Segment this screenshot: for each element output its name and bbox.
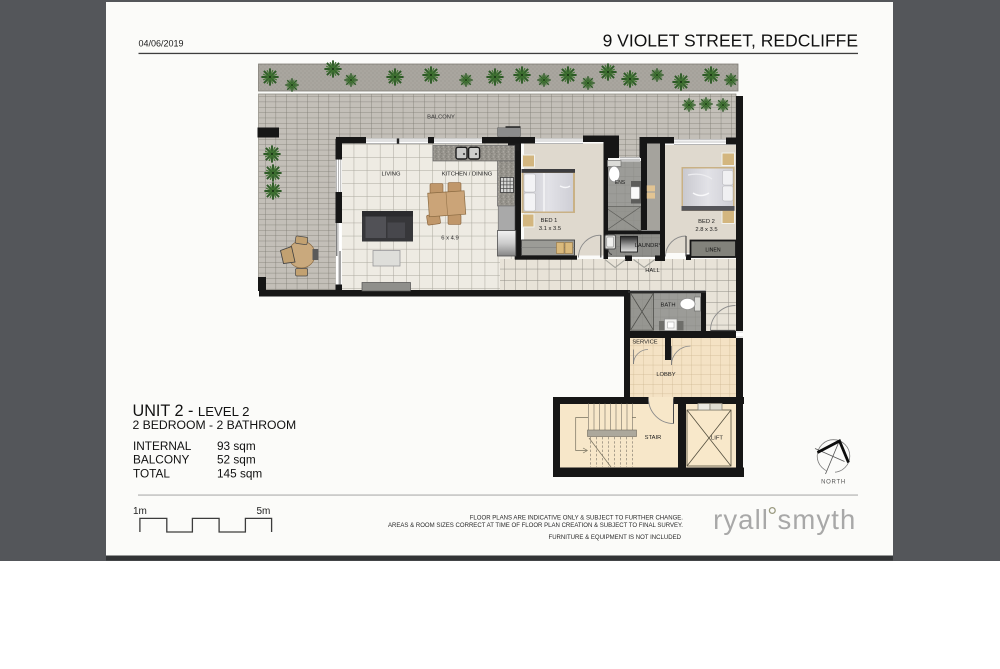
svg-text:STAIR: STAIR: [645, 435, 662, 441]
svg-text:KITCHEN / DINING: KITCHEN / DINING: [442, 172, 493, 178]
svg-text:5m: 5m: [257, 506, 271, 517]
svg-text:ryall: ryall: [713, 504, 769, 535]
svg-text:04/06/2019: 04/06/2019: [139, 39, 184, 49]
svg-text:1m: 1m: [133, 506, 147, 517]
svg-text:145 sqm: 145 sqm: [217, 466, 262, 480]
svg-text:LAUNDRY: LAUNDRY: [635, 243, 663, 249]
svg-text:AREAS & ROOM SIZES CORRECT AT: AREAS & ROOM SIZES CORRECT AT TIME OF FL…: [388, 523, 683, 529]
svg-text:TOTAL: TOTAL: [133, 466, 170, 480]
svg-text:BALCONY: BALCONY: [427, 115, 455, 121]
svg-text:6 x 4.9: 6 x 4.9: [441, 236, 458, 242]
svg-text:9 VIOLET STREET, REDCLIFFE: 9 VIOLET STREET, REDCLIFFE: [603, 31, 858, 51]
svg-text:HALL: HALL: [645, 268, 660, 274]
svg-text:INTERNAL: INTERNAL: [133, 439, 192, 453]
svg-text:LIVING: LIVING: [381, 172, 400, 178]
svg-text:3.1 x 3.5: 3.1 x 3.5: [539, 226, 561, 232]
svg-text:LINEN: LINEN: [705, 248, 721, 254]
svg-text:2 BEDROOM - 2 BATHROOM: 2 BEDROOM - 2 BATHROOM: [133, 418, 297, 432]
svg-text:BED 2: BED 2: [698, 219, 715, 225]
svg-text:52 sqm: 52 sqm: [217, 453, 256, 467]
svg-text:smyth: smyth: [778, 504, 857, 535]
svg-text:SERVICE: SERVICE: [632, 340, 657, 346]
svg-text:93 sqm: 93 sqm: [217, 439, 256, 453]
svg-text:NORTH: NORTH: [821, 480, 846, 486]
svg-text:LIFT: LIFT: [711, 436, 723, 442]
svg-text:BATH: BATH: [660, 303, 675, 309]
svg-text:ENS: ENS: [615, 180, 626, 186]
svg-text:2.8 x 3.5: 2.8 x 3.5: [695, 227, 717, 233]
svg-text:FURNITURE & EQUIPMENT IS NOT I: FURNITURE & EQUIPMENT IS NOT INCLUDED: [549, 535, 682, 541]
svg-text:FLOOR PLANS ARE INDICATIVE ONL: FLOOR PLANS ARE INDICATIVE ONLY & SUBJEC…: [470, 516, 684, 522]
svg-text:BED 1: BED 1: [541, 218, 558, 224]
svg-text:BALCONY: BALCONY: [133, 453, 190, 467]
svg-text:LOBBY: LOBBY: [656, 372, 675, 378]
